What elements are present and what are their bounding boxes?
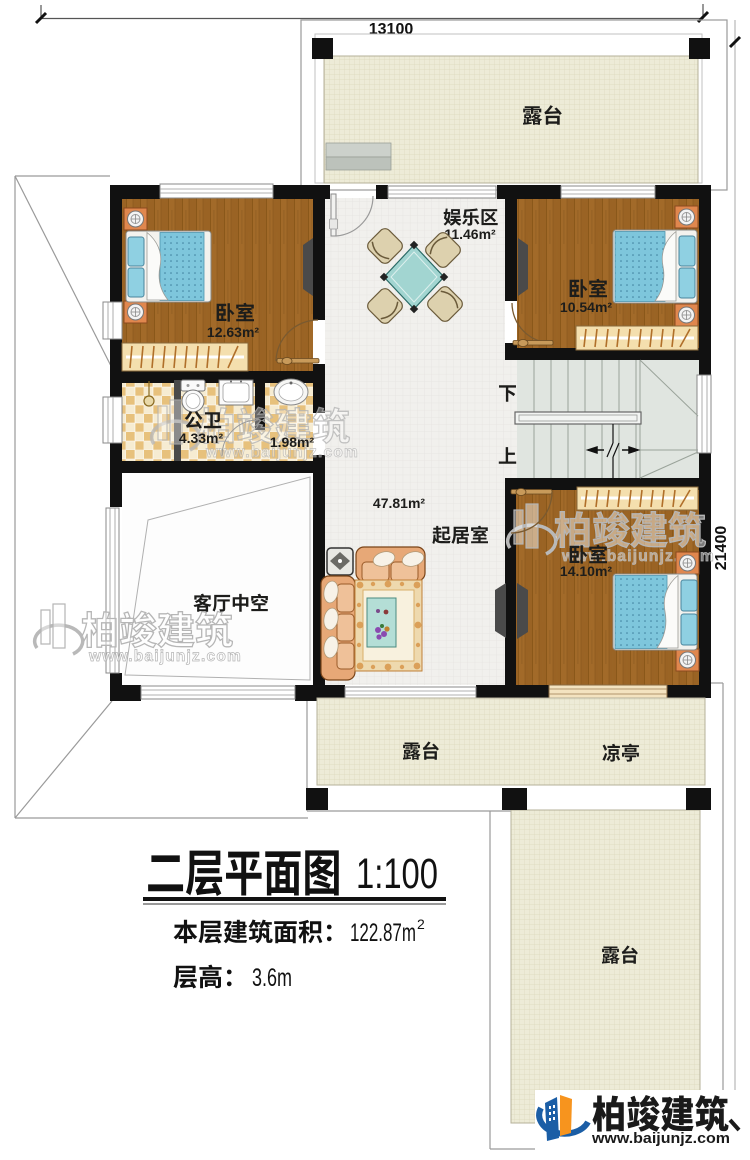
svg-text:13100: 13100 (369, 21, 414, 38)
svg-text:14.10m²: 14.10m² (560, 563, 612, 579)
svg-text:www.baijunjz.com: www.baijunjz.com (591, 1130, 730, 1147)
svg-text:1.98m²: 1.98m² (270, 434, 315, 450)
svg-text:www.baijunjz.com: www.baijunjz.com (88, 648, 242, 665)
svg-text:3.6m: 3.6m (252, 964, 292, 992)
svg-text:10.54m²: 10.54m² (560, 299, 612, 315)
svg-text:21400: 21400 (713, 526, 730, 571)
svg-text:1:100: 1:100 (356, 850, 438, 898)
svg-text:2: 2 (417, 916, 425, 932)
svg-text:122.87m: 122.87m (350, 919, 416, 947)
svg-text:12.63m²: 12.63m² (207, 324, 259, 340)
svg-text:4.33m²: 4.33m² (179, 430, 224, 446)
svg-text:47.81m²: 47.81m² (373, 495, 425, 511)
